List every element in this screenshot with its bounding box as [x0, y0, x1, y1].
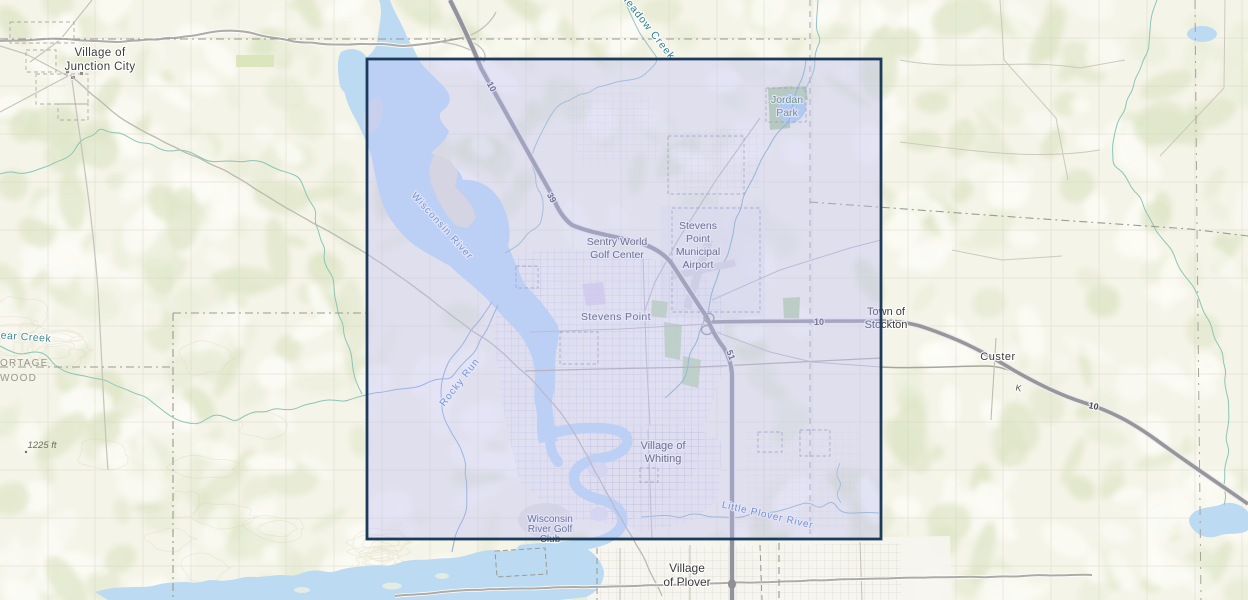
svg-text:Village: Village: [669, 561, 705, 575]
svg-text:10: 10: [1088, 400, 1100, 412]
svg-text:ORTAGE: ORTAGE: [0, 358, 49, 369]
svg-text:of Plover: of Plover: [663, 575, 710, 589]
svg-text:1225 ft: 1225 ft: [27, 440, 56, 451]
svg-text:Village of: Village of: [74, 47, 126, 59]
svg-text:Junction City: Junction City: [64, 61, 135, 73]
svg-text:Custer: Custer: [980, 351, 1015, 363]
svg-text:WOOD: WOOD: [0, 373, 37, 384]
